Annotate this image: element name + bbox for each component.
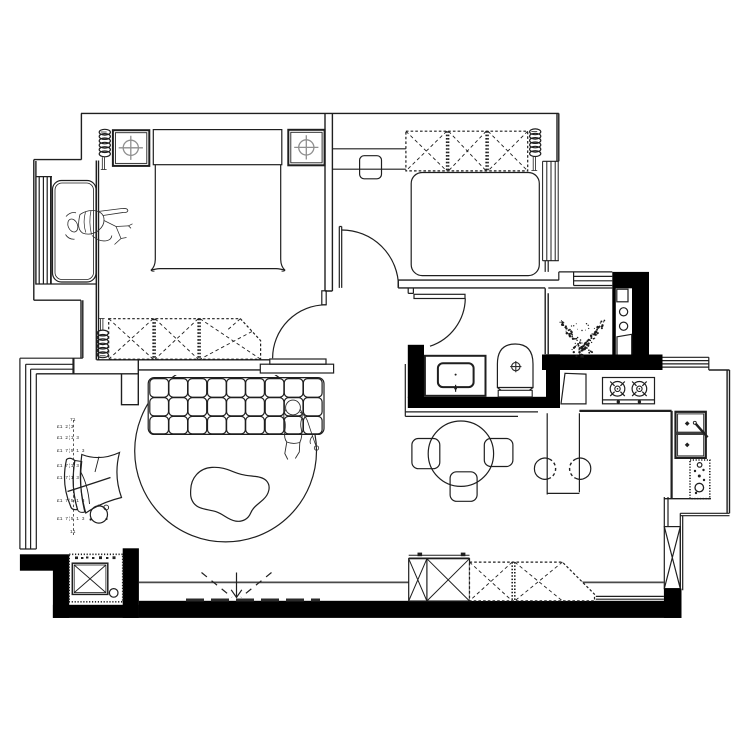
svg-text:£1 7¦5 1 3: £1 7¦5 1 3 <box>57 498 85 504</box>
svg-text:£1 7¦1 3: £1 7¦1 3 <box>57 463 79 469</box>
svg-text:£1 2¦3: £1 2¦3 <box>57 424 74 430</box>
svg-text:£1 7¦5 1 3: £1 7¦5 1 3 <box>57 448 85 454</box>
svg-text:£1 7¦5 1 3: £1 7¦5 1 3 <box>57 516 85 522</box>
svg-text:71: 71 <box>70 417 76 423</box>
svg-text:£1 7¦1 3: £1 7¦1 3 <box>57 475 79 481</box>
svg-text:11: 11 <box>70 529 76 535</box>
svg-text:£1 2¦1 3: £1 2¦1 3 <box>57 435 79 441</box>
